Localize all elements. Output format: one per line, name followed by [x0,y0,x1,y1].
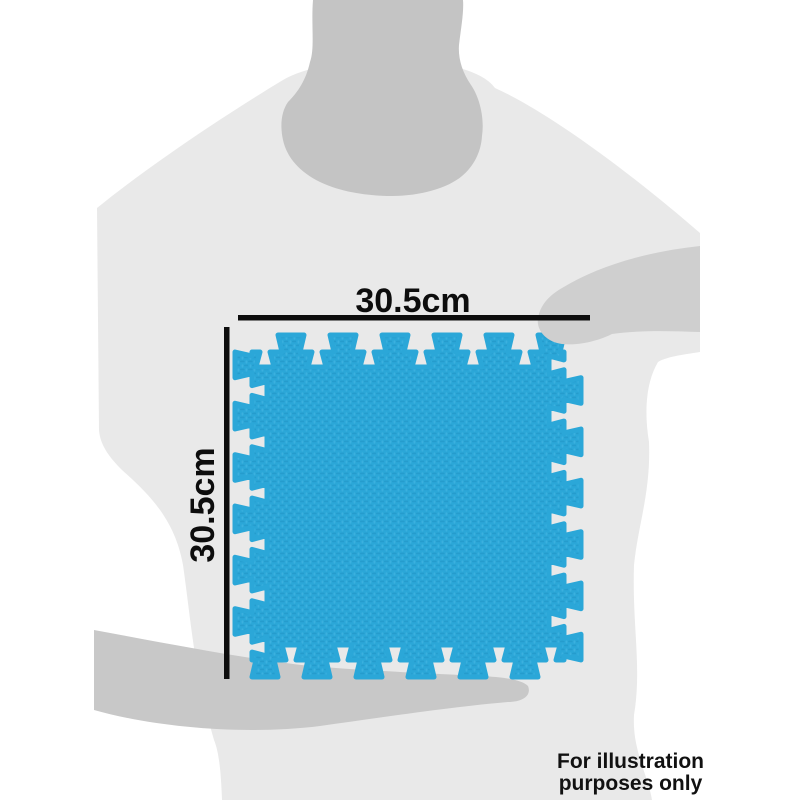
product-illustration: 30.5cm 30.5cm For illustration purposes … [0,0,800,800]
silhouette-and-mat-graphic: 30.5cm 30.5cm [0,0,800,800]
disclaimer-line-2: purposes only [543,773,718,795]
disclaimer-line-1: For illustration [543,751,718,773]
disclaimer-text: For illustration purposes only [543,751,718,795]
height-dimension-line [224,327,230,679]
height-dimension-label: 30.5cm [184,447,222,562]
width-dimension-label: 30.5cm [355,282,470,320]
foam-mat-tile [235,335,581,677]
person-head-silhouette [281,0,482,196]
